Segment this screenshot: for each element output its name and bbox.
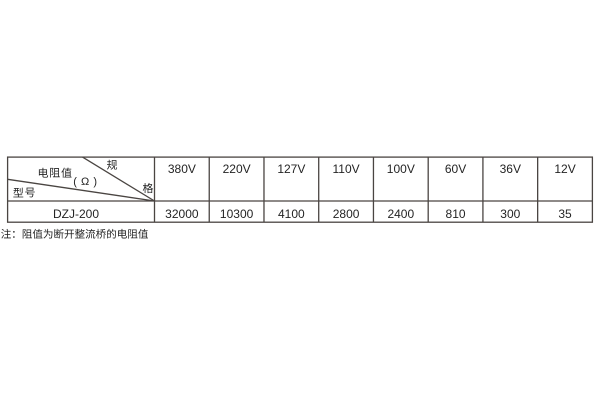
svg-text:810: 810 [446, 207, 466, 221]
svg-text:60V: 60V [445, 162, 466, 176]
svg-text:2800: 2800 [333, 207, 360, 221]
svg-text:DZJ-200: DZJ-200 [53, 207, 99, 221]
svg-text:( Ω ): ( Ω ) [73, 176, 97, 188]
svg-text:300: 300 [500, 207, 520, 221]
svg-text:380V: 380V [168, 162, 196, 176]
svg-text:100V: 100V [387, 162, 415, 176]
svg-text:32000: 32000 [165, 207, 199, 221]
svg-text:36V: 36V [500, 162, 521, 176]
svg-text:35: 35 [558, 207, 572, 221]
svg-text:2400: 2400 [387, 207, 414, 221]
svg-text:110V: 110V [333, 162, 360, 176]
svg-text:220V: 220V [223, 162, 251, 176]
svg-text:127V: 127V [277, 162, 305, 176]
svg-text:10300: 10300 [220, 207, 254, 221]
svg-text:4100: 4100 [278, 207, 305, 221]
svg-text:12V: 12V [554, 162, 575, 176]
